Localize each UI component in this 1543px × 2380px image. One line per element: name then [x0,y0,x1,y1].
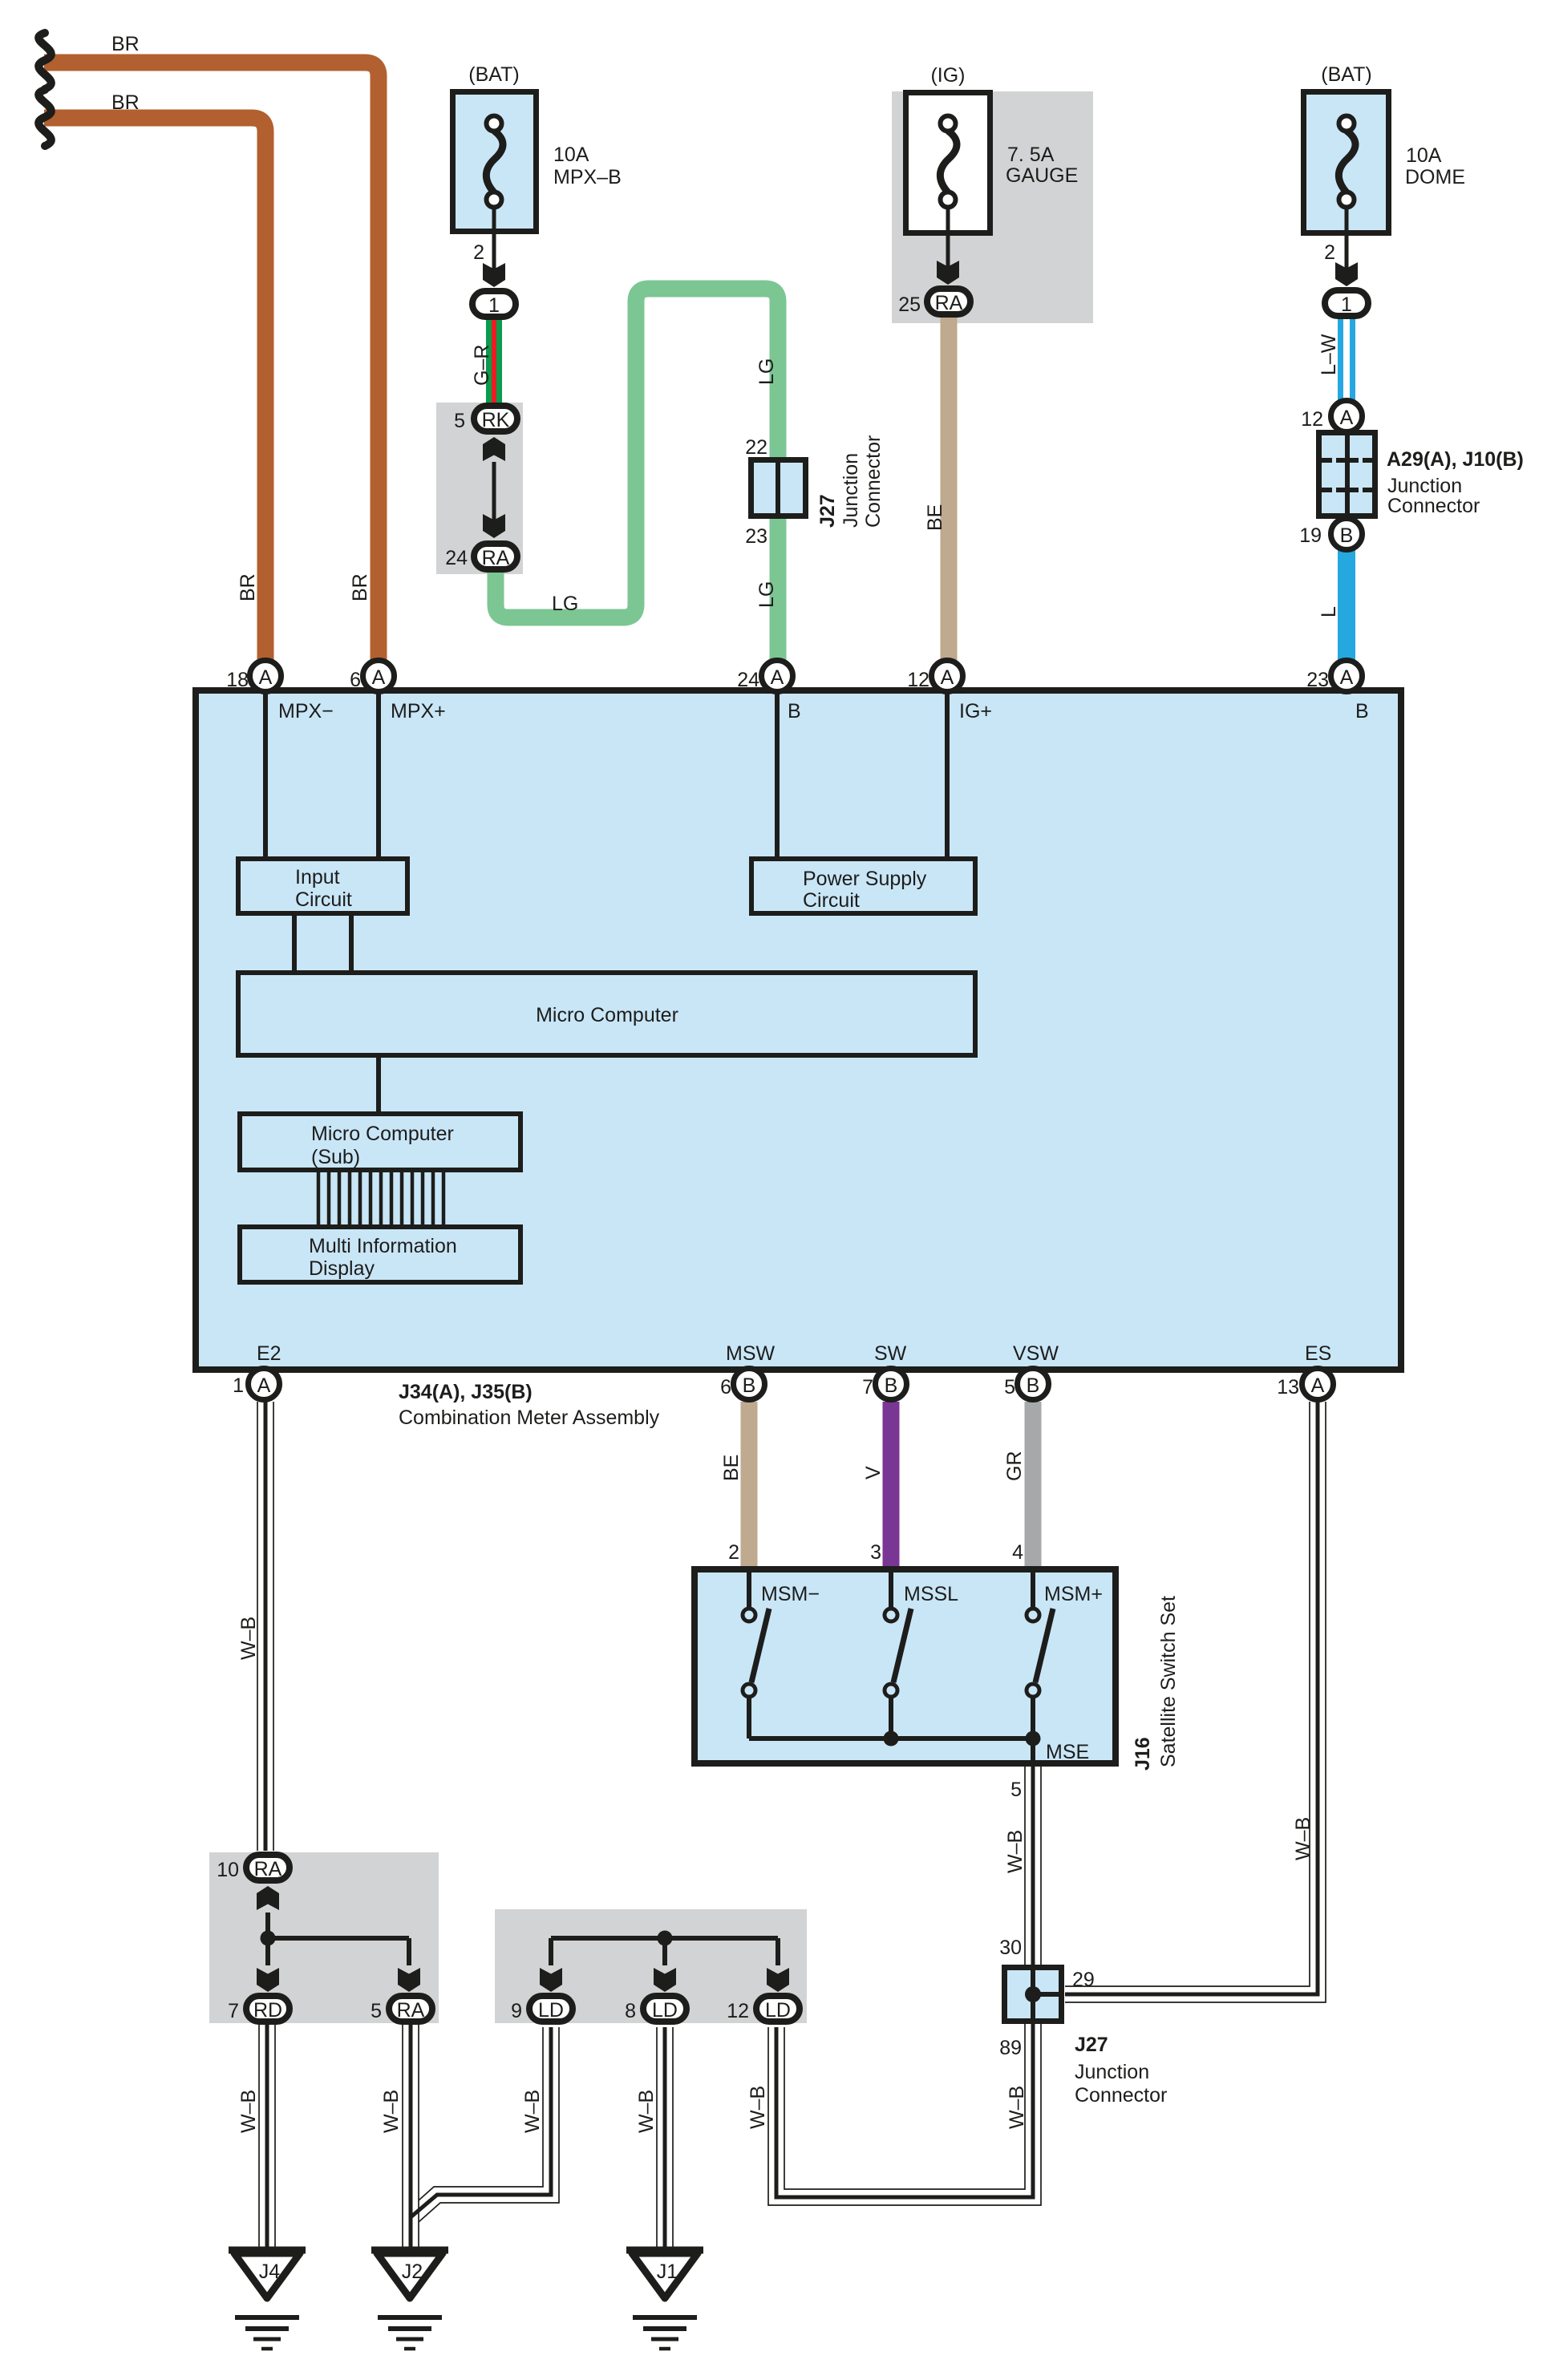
svg-text:J34(A), J35(B): J34(A), J35(B) [399,1381,533,1403]
svg-text:Micro Computer: Micro Computer [311,1123,454,1145]
svg-text:89: 89 [999,2037,1022,2059]
svg-text:VSW: VSW [1013,1342,1059,1365]
svg-text:5: 5 [371,2000,382,2022]
svg-text:Junction: Junction [1387,475,1462,497]
svg-text:A29(A), J10(B): A29(A), J10(B) [1387,448,1524,471]
svg-text:12: 12 [907,669,929,691]
svg-text:5: 5 [454,410,465,432]
svg-text:W–B: W–B [747,2086,769,2129]
svg-text:Combination Meter Assembly: Combination Meter Assembly [399,1407,660,1429]
svg-text:W–B: W–B [1004,1830,1027,1873]
svg-text:2: 2 [728,1541,739,1564]
svg-text:Multi Information: Multi Information [309,1235,457,1257]
svg-text:LG: LG [755,581,778,608]
svg-text:MPX+: MPX+ [391,700,446,722]
svg-text:RK: RK [482,409,510,431]
svg-text:B: B [788,700,801,722]
svg-text:W–B: W–B [521,2090,544,2133]
svg-text:LD: LD [652,1999,678,2022]
svg-text:W–B: W–B [1292,1817,1314,1860]
svg-text:10A: 10A [553,144,589,166]
svg-text:13: 13 [1277,1376,1299,1398]
svg-text:(IG): (IG) [930,64,965,87]
svg-text:MSW: MSW [726,1342,776,1365]
svg-text:1: 1 [488,294,500,317]
svg-text:12: 12 [1301,408,1323,431]
svg-text:7: 7 [862,1376,873,1398]
svg-text:BR: BR [349,573,371,601]
svg-text:RA: RA [482,547,510,569]
svg-text:BE: BE [924,504,946,531]
svg-text:J27: J27 [816,494,839,528]
svg-text:J4: J4 [259,2261,281,2283]
svg-text:7: 7 [228,2000,239,2022]
svg-text:J1: J1 [657,2261,678,2283]
svg-text:2: 2 [1324,241,1335,264]
svg-text:MSE: MSE [1046,1741,1089,1763]
svg-text:J2: J2 [402,2261,423,2283]
svg-text:BR: BR [237,573,259,601]
svg-text:A: A [1340,407,1354,429]
svg-text:RA: RA [397,1999,425,2022]
svg-text:W–B: W–B [635,2090,658,2133]
svg-text:24: 24 [445,547,468,569]
svg-text:RA: RA [935,292,963,314]
svg-text:MPX−: MPX− [278,700,334,722]
svg-text:RD: RD [253,1999,282,2022]
svg-text:23: 23 [1306,669,1329,691]
svg-text:W–B: W–B [380,2090,403,2133]
svg-text:B: B [1355,700,1369,722]
svg-text:L: L [1318,606,1340,617]
svg-text:SW: SW [874,1342,907,1365]
svg-text:BE: BE [720,1455,743,1481]
svg-text:(BAT): (BAT) [1321,63,1371,86]
svg-text:A: A [1340,666,1354,689]
svg-text:Connector: Connector [862,435,885,528]
svg-text:LD: LD [538,1999,564,2022]
svg-text:MSM+: MSM+ [1044,1583,1103,1605]
svg-text:5: 5 [1004,1376,1015,1398]
svg-text:Connector: Connector [1387,495,1480,517]
svg-text:LG: LG [552,593,578,615]
svg-text:Micro Computer: Micro Computer [536,1004,678,1026]
svg-text:23: 23 [745,525,767,548]
svg-text:29: 29 [1072,1969,1095,1991]
svg-text:MSM−: MSM− [761,1583,820,1605]
svg-text:7. 5A: 7. 5A [1007,144,1055,166]
svg-text:B: B [1340,524,1354,547]
svg-text:6: 6 [720,1376,731,1398]
svg-text:2: 2 [473,241,484,264]
svg-text:10: 10 [217,1859,239,1881]
svg-text:Junction: Junction [840,453,862,528]
svg-text:J27: J27 [1075,2034,1108,2056]
svg-text:A: A [1311,1374,1325,1397]
svg-text:BR: BR [111,91,140,114]
svg-text:9: 9 [511,2000,522,2022]
svg-text:W–B: W–B [237,1617,260,1660]
svg-text:B: B [885,1374,898,1397]
svg-text:(BAT): (BAT) [468,63,519,86]
svg-text:A: A [259,666,273,689]
svg-text:GAUGE: GAUGE [1006,164,1078,187]
svg-text:18: 18 [226,669,249,691]
svg-text:GR: GR [1003,1451,1026,1482]
svg-text:22: 22 [745,436,767,459]
svg-text:E2: E2 [257,1342,281,1365]
svg-text:4: 4 [1012,1541,1023,1564]
svg-text:Input: Input [295,866,340,888]
svg-text:MSSL: MSSL [904,1583,958,1605]
svg-text:B: B [743,1374,756,1397]
svg-text:G–R: G–R [471,345,493,386]
svg-text:3: 3 [870,1541,881,1564]
svg-text:W–B: W–B [1006,2086,1028,2129]
svg-text:Circuit: Circuit [803,889,860,912]
svg-text:W–B: W–B [237,2090,260,2133]
svg-text:A: A [372,666,386,689]
svg-text:ES: ES [1305,1342,1331,1365]
svg-text:J16: J16 [1132,1737,1154,1771]
svg-text:10A: 10A [1406,144,1442,167]
svg-text:Power Supply: Power Supply [803,868,927,890]
svg-text:8: 8 [625,2000,636,2022]
svg-text:RA: RA [254,1858,282,1880]
svg-text:BR: BR [111,33,140,55]
svg-text:19: 19 [1299,524,1322,547]
svg-text:A: A [257,1374,271,1397]
svg-text:1: 1 [1341,293,1352,316]
svg-text:V: V [862,1466,885,1479]
svg-text:A: A [771,666,784,689]
svg-text:L–W: L–W [1318,334,1340,375]
svg-text:Display: Display [309,1257,375,1280]
svg-text:(Sub): (Sub) [311,1146,360,1168]
svg-text:Connector: Connector [1075,2084,1167,2107]
svg-text:12: 12 [727,2000,749,2022]
svg-text:IG+: IG+ [959,700,992,722]
svg-text:B: B [1027,1374,1040,1397]
svg-text:LD: LD [765,1999,791,2022]
svg-text:LG: LG [755,358,778,385]
svg-text:Circuit: Circuit [295,888,352,911]
svg-text:A: A [941,666,954,689]
svg-text:Satellite Switch Set: Satellite Switch Set [1157,1596,1180,1767]
svg-text:6: 6 [350,669,361,691]
svg-text:5: 5 [1010,1779,1022,1801]
svg-text:1: 1 [233,1374,244,1397]
svg-text:Junction: Junction [1075,2061,1149,2083]
svg-text:30: 30 [999,1937,1022,1959]
svg-text:24: 24 [737,669,759,691]
svg-text:DOME: DOME [1405,166,1465,188]
svg-text:25: 25 [898,293,921,316]
svg-text:MPX–B: MPX–B [553,166,622,188]
